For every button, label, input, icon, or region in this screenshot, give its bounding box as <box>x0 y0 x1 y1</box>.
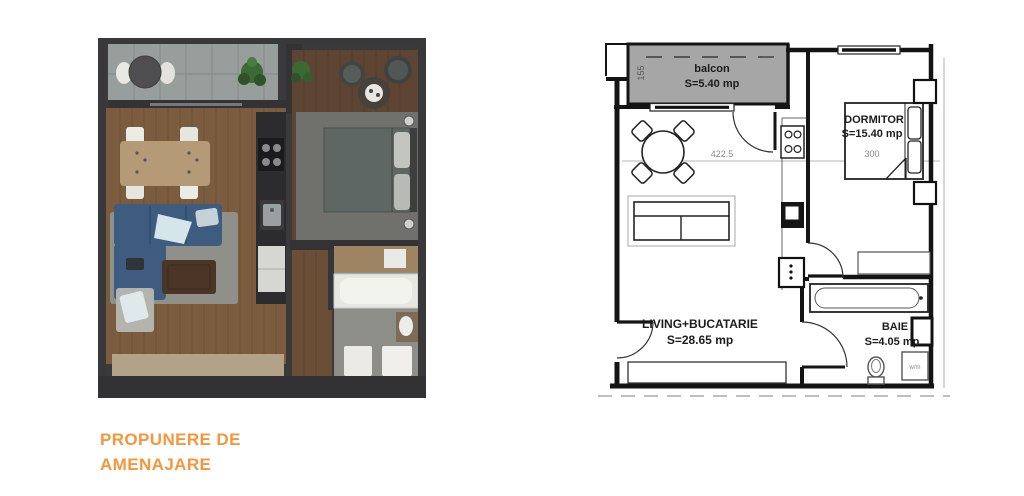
plan-balcony: balcon S=5.40 mp 155 <box>606 44 788 104</box>
dining-table-symbol <box>642 131 684 173</box>
balcony-depth-dim: 155 <box>636 65 646 80</box>
vanity-sink <box>384 249 406 268</box>
bath-fixture <box>344 346 372 376</box>
kitchen <box>256 112 286 304</box>
rendered-floor-plan-svg <box>98 38 426 398</box>
cooktop-symbol <box>781 126 804 158</box>
sofa-pillow <box>195 208 219 228</box>
toilet <box>396 312 418 342</box>
bed <box>324 128 417 212</box>
toilet-symbol <box>868 357 884 384</box>
bathroom-partition <box>328 250 334 310</box>
bed-pillow <box>394 174 410 210</box>
bedroom <box>286 38 418 246</box>
bathroom-door-arc <box>802 322 847 367</box>
nightstand <box>404 116 414 126</box>
bed-width-dim: 300 <box>864 149 879 159</box>
bedroom-area: S=15.40 mp <box>842 128 903 140</box>
caption-line2: AMENAJARE <box>100 452 241 477</box>
technical-floor-plan: balcon S=5.40 mp 155 <box>596 28 952 404</box>
hallway-floor <box>292 250 332 378</box>
bathtub <box>334 274 418 308</box>
bathtub-symbol <box>810 284 928 312</box>
plan-bedroom: DORMITOR S=15.40 mp 300 <box>842 80 936 274</box>
sideboard <box>112 354 284 376</box>
side-ottoman <box>116 288 154 332</box>
outer-wall-right <box>418 38 426 398</box>
sofa-symbol <box>628 196 735 246</box>
sideboard-symbol <box>628 362 786 383</box>
wall-niche <box>914 80 936 103</box>
rendered-floor-plan <box>98 38 426 398</box>
outer-wall-bottom <box>98 376 426 398</box>
balcony-label: balcon <box>694 63 730 75</box>
outer-wall-left <box>98 38 106 398</box>
washing-machine-symbol: w/m <box>902 352 928 380</box>
washing-machine-label: w/m <box>909 365 921 371</box>
balcony-door-arc <box>733 112 773 152</box>
outer-wall-top <box>98 38 426 44</box>
technical-floor-plan-svg: balcon S=5.40 mp 155 <box>596 28 952 404</box>
plan-bathroom: w/m BAIE S=4.05 mp <box>810 284 932 384</box>
wall-niche <box>914 182 936 204</box>
bedroom-label: DORMITOR <box>844 114 904 126</box>
bathroom <box>290 240 418 378</box>
plan-kitchen <box>779 118 806 290</box>
living-label: LIVING+BUCATARIE <box>642 317 758 331</box>
living-area: S=28.65 mp <box>667 333 733 347</box>
bed-pillow <box>394 132 410 168</box>
bathroom-area: S=4.05 mp <box>865 336 920 348</box>
headboard <box>410 128 417 212</box>
balcony-door-glass <box>150 103 242 106</box>
wardrobe-symbol <box>858 252 930 274</box>
balcony-area: S=5.40 mp <box>685 78 740 90</box>
balcony-side-wall <box>606 44 628 76</box>
bedroom-door-arc <box>808 243 843 278</box>
caption-line1: PROPUNERE DE <box>100 427 241 452</box>
living-width-dim: 422.5 <box>711 149 734 159</box>
plan-caption: PROPUNERE DE AMENAJARE <box>100 427 241 477</box>
tray-table <box>358 77 390 109</box>
sofa-tray <box>126 258 144 270</box>
plan-living: LIVING+BUCATARIE S=28.65 mp 422.5 <box>628 120 786 383</box>
nightstand <box>404 219 414 229</box>
dining-table <box>120 141 210 186</box>
cooktop <box>258 138 284 171</box>
balcony <box>108 44 286 110</box>
page: balcon S=5.40 mp 155 <box>0 0 1024 496</box>
bathroom-label: BAIE <box>882 321 908 333</box>
washing-machine <box>382 346 412 376</box>
